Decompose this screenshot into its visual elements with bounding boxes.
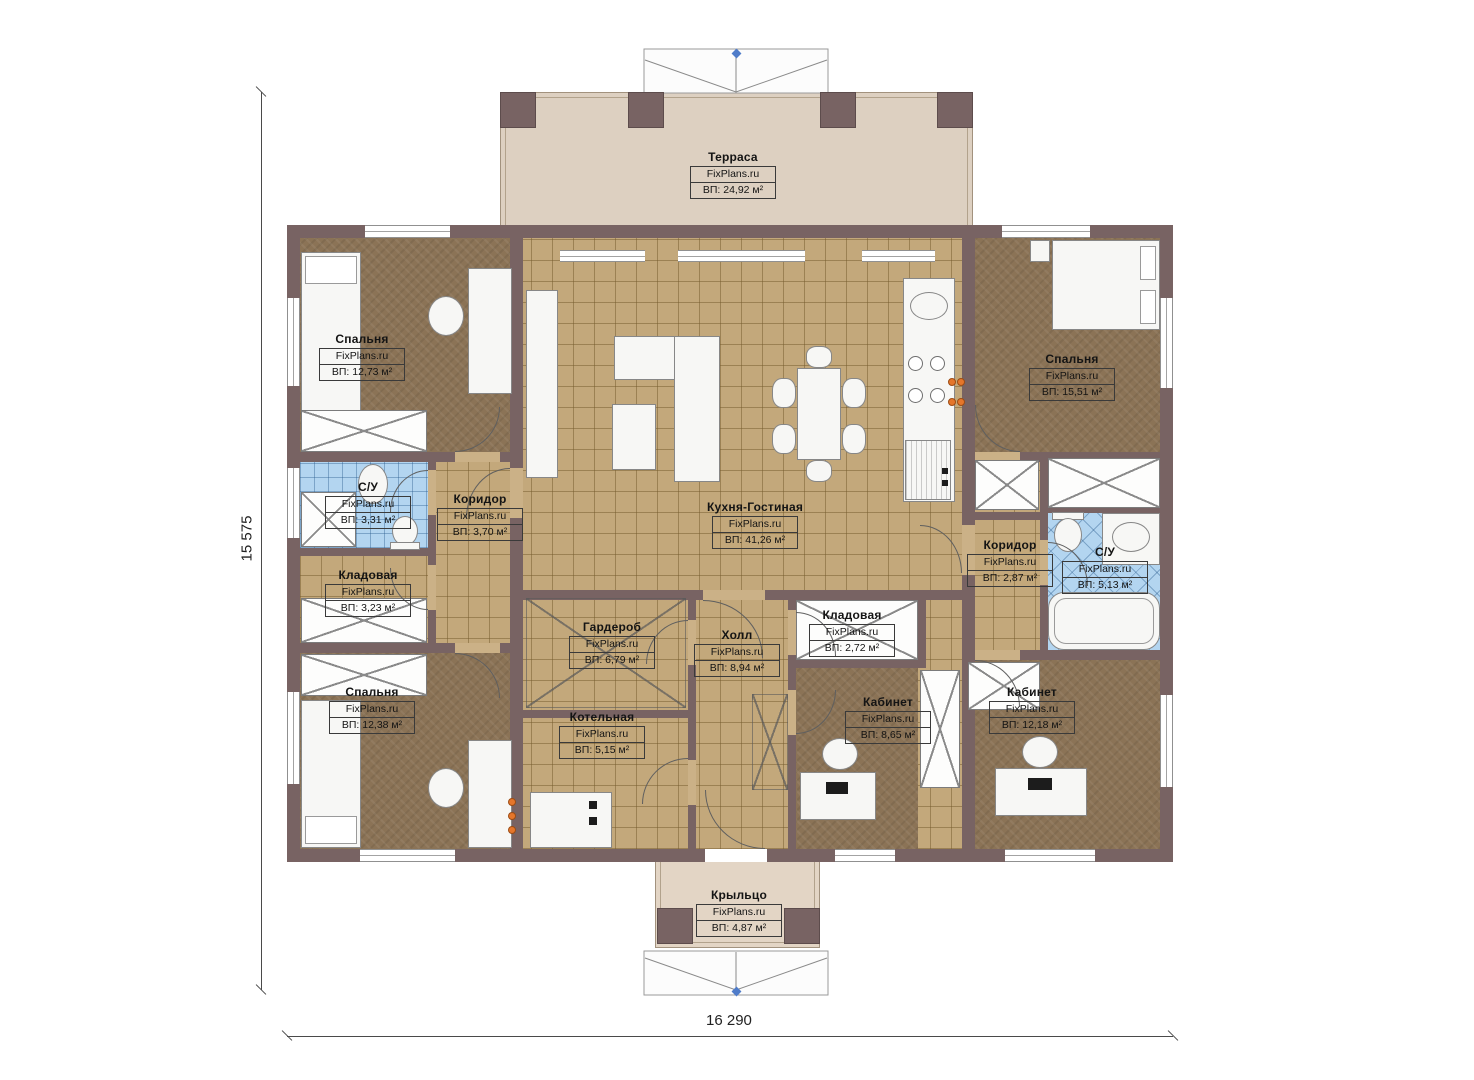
room-name: Коридор — [405, 492, 555, 506]
pillow — [305, 256, 357, 284]
room-watermark: FixPlans.ru — [809, 624, 895, 641]
terrace-window — [862, 250, 935, 262]
room-label-kitchen-living: Кухня-Гостиная FixPlans.ru ВП: 41,26 м² — [680, 500, 830, 549]
coffee-table — [612, 404, 656, 470]
window — [1160, 298, 1173, 388]
room-name: Терраса — [658, 150, 808, 164]
room-name: Котельная — [527, 710, 677, 724]
terrace-door-window — [678, 250, 805, 262]
gas-valve-dot — [948, 398, 956, 406]
room-area: ВП: 41,26 м² — [712, 532, 798, 549]
room-name: Крыльцо — [664, 888, 814, 902]
room-label-terrace: Терраса FixPlans.ru ВП: 24,92 м² — [658, 150, 808, 199]
appliance-handle — [942, 468, 948, 474]
dining-chair — [806, 460, 832, 482]
partition-wall — [794, 660, 926, 668]
pillow — [1140, 246, 1156, 280]
room-area: ВП: 6,79 м² — [569, 652, 655, 669]
room-label-bathroom-right: С/У FixPlans.ru ВП: 5,13 м² — [1030, 545, 1180, 594]
room-area: ВП: 12,18 м² — [989, 717, 1075, 734]
sofa-vertical — [674, 336, 720, 482]
window — [360, 849, 455, 862]
room-name: Кладовая — [293, 568, 443, 582]
boiler-valve-dot — [508, 812, 516, 820]
wardrobe-crossed — [301, 410, 427, 452]
room-label-boiler: Котельная FixPlans.ru ВП: 5,15 м² — [527, 710, 677, 759]
window — [835, 849, 895, 862]
desk-chair — [1022, 736, 1058, 768]
dimension-text-vertical: 15 575 — [238, 510, 255, 568]
appliance-handle — [942, 480, 948, 486]
room-name: Кабинет — [957, 685, 1107, 699]
room-watermark: FixPlans.ru — [569, 636, 655, 653]
wardrobe-crossed — [1048, 458, 1160, 508]
door-opening — [788, 690, 796, 735]
pillow — [1140, 290, 1156, 324]
desk-chair — [428, 296, 464, 336]
room-watermark: FixPlans.ru — [845, 711, 931, 728]
floor-plan-canvas: Терраса FixPlans.ru ВП: 24,92 м² Спальня… — [0, 0, 1474, 1080]
room-area: ВП: 3,31 м² — [325, 512, 411, 529]
room-name: Кладовая — [777, 608, 927, 622]
room-area: ВП: 8,65 м² — [845, 727, 931, 744]
room-name: Кухня-Гостиная — [680, 500, 830, 514]
toilet-tank — [390, 542, 420, 550]
terrace-column — [500, 92, 536, 128]
room-area: ВП: 2,72 м² — [809, 640, 895, 657]
desk — [468, 740, 512, 848]
nightstand — [1030, 240, 1050, 262]
gas-valve-dot — [957, 378, 965, 386]
window — [1160, 695, 1173, 787]
dining-table — [797, 368, 841, 460]
room-watermark: FixPlans.ru — [696, 904, 782, 921]
dining-chair — [842, 424, 866, 454]
room-area: ВП: 12,73 м² — [319, 364, 405, 381]
room-area: ВП: 5,13 м² — [1062, 577, 1148, 594]
door-opening — [688, 760, 696, 805]
dining-chair — [772, 424, 796, 454]
dining-chair — [772, 378, 796, 408]
boiler-control — [589, 817, 597, 825]
door-opening — [975, 650, 1020, 660]
room-watermark: FixPlans.ru — [325, 496, 411, 513]
room-watermark: FixPlans.ru — [1062, 561, 1148, 578]
room-watermark: FixPlans.ru — [559, 726, 645, 743]
window — [1002, 225, 1090, 238]
partition-wall — [968, 512, 1040, 520]
room-area: ВП: 3,70 м² — [437, 524, 523, 541]
door-opening — [455, 452, 500, 462]
boiler-control — [589, 801, 597, 809]
room-watermark: FixPlans.ru — [712, 516, 798, 533]
room-area: ВП: 12,38 м² — [329, 717, 415, 734]
wardrobe-crossed — [975, 460, 1039, 510]
gas-valve-dot — [948, 378, 956, 386]
dimension-line-vertical — [261, 92, 262, 990]
double-bed — [1052, 240, 1160, 330]
gas-valve-dot — [957, 398, 965, 406]
boiler-valve-dot — [508, 826, 516, 834]
entry-door-opening — [705, 849, 767, 862]
boiler-valve-dot — [508, 798, 516, 806]
stove-burner — [930, 388, 945, 403]
desk — [995, 768, 1087, 816]
room-watermark: FixPlans.ru — [690, 166, 776, 183]
room-label-corridor-left: Коридор FixPlans.ru ВП: 3,70 м² — [405, 492, 555, 541]
dining-chair — [842, 378, 866, 408]
dimension-text-horizontal: 16 290 — [700, 1012, 758, 1029]
room-watermark: FixPlans.ru — [325, 584, 411, 601]
dimension-line-horizontal — [287, 1036, 1173, 1037]
room-label-office-center: Кабинет FixPlans.ru ВП: 8,65 м² — [813, 695, 963, 744]
stove-burner — [908, 356, 923, 371]
terrace-column — [628, 92, 664, 128]
terrace-column — [820, 92, 856, 128]
room-name: С/У — [1030, 545, 1180, 559]
room-area: ВП: 5,15 м² — [559, 742, 645, 759]
room-name: Спальня — [287, 332, 437, 346]
bathtub — [1048, 592, 1160, 650]
room-name: Кабинет — [813, 695, 963, 709]
terrace-window — [560, 250, 645, 262]
room-name: Спальня — [297, 685, 447, 699]
room-label-bedroom-tl: Спальня FixPlans.ru ВП: 12,73 м² — [287, 332, 437, 381]
computer-monitor — [826, 782, 848, 794]
room-name: Спальня — [997, 352, 1147, 366]
terrace-column — [937, 92, 973, 128]
room-label-bedroom-tr: Спальня FixPlans.ru ВП: 15,51 м² — [997, 352, 1147, 401]
dining-chair — [806, 346, 832, 368]
room-watermark: FixPlans.ru — [694, 644, 780, 661]
window — [365, 225, 450, 238]
stove-burner — [930, 356, 945, 371]
room-area: ВП: 8,94 м² — [694, 660, 780, 677]
door-opening — [703, 590, 765, 600]
desk-chair — [428, 768, 464, 808]
room-label-storage-center: Кладовая FixPlans.ru ВП: 2,72 м² — [777, 608, 927, 657]
room-area: ВП: 24,92 м² — [690, 182, 776, 199]
room-watermark: FixPlans.ru — [989, 701, 1075, 718]
stove-burner — [908, 388, 923, 403]
room-label-bedroom-bl: Спальня FixPlans.ru ВП: 12,38 м² — [297, 685, 447, 734]
room-label-office-right: Кабинет FixPlans.ru ВП: 12,18 м² — [957, 685, 1107, 734]
room-area: ВП: 15,51 м² — [1029, 384, 1115, 401]
tv-stand — [526, 290, 558, 478]
bathtub-inner-line — [1054, 598, 1154, 644]
door-opening — [455, 643, 500, 653]
pillow — [305, 816, 357, 844]
room-area: ВП: 3,23 м² — [325, 600, 411, 617]
kitchen-sink — [910, 292, 948, 320]
room-area: ВП: 4,87 м² — [696, 920, 782, 937]
room-label-porch: Крыльцо FixPlans.ru ВП: 4,87 м² — [664, 888, 814, 937]
room-watermark: FixPlans.ru — [437, 508, 523, 525]
computer-monitor — [1028, 778, 1052, 790]
room-watermark: FixPlans.ru — [329, 701, 415, 718]
hall-closet-lines — [752, 694, 788, 790]
room-label-storage-left: Кладовая FixPlans.ru ВП: 3,23 м² — [293, 568, 443, 617]
desk — [800, 772, 876, 820]
desk — [468, 268, 512, 394]
room-watermark: FixPlans.ru — [1029, 368, 1115, 385]
boiler-unit — [530, 792, 612, 848]
window — [1005, 849, 1095, 862]
room-watermark: FixPlans.ru — [319, 348, 405, 365]
